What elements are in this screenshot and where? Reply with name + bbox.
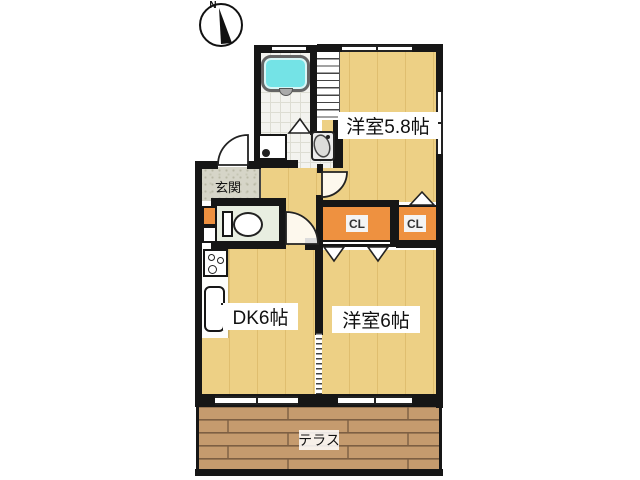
wall-toilet-top	[211, 198, 286, 206]
stove-burner-icon	[208, 265, 217, 274]
stove-burner-icon	[208, 254, 215, 261]
closet-left-label: CL	[346, 215, 368, 232]
wall-bath-right	[310, 45, 317, 135]
wall-toilet-right	[279, 198, 286, 249]
wall-toilet-bottom	[211, 241, 286, 249]
wall-junction	[305, 238, 318, 250]
sliding-door-dk-room6	[316, 333, 322, 394]
wall-terrace-bottom	[195, 469, 443, 476]
washing-machine-drain-icon	[262, 149, 270, 157]
terrace-label: テラス	[299, 430, 339, 450]
storage-box-icon	[202, 226, 217, 243]
closet-shelf-strip	[317, 52, 340, 120]
stove-burner-icon	[217, 257, 224, 264]
wall-dk-room6-partition	[315, 250, 323, 335]
entrance-label: 玄関	[210, 178, 246, 194]
toilet-tank-icon	[222, 211, 233, 237]
washbasin-icon	[311, 131, 335, 161]
room-5-8-label: 洋室5.8帖	[338, 112, 438, 139]
shoe-cabinet-icon	[202, 206, 217, 226]
wall-left	[195, 161, 202, 400]
floor-plan: N	[0, 0, 640, 480]
dk-label: DK6帖	[223, 303, 298, 330]
wall-hall-room58-stub	[317, 164, 323, 173]
wall-terrace-left	[196, 407, 199, 469]
wall-closet-right-bottom	[396, 240, 443, 248]
washing-machine-icon	[258, 134, 287, 160]
bathtub-icon	[261, 55, 310, 92]
room-6-label: 洋室6帖	[332, 306, 420, 333]
toilet-bowl-icon	[233, 212, 263, 237]
wall-terrace-right	[439, 407, 442, 469]
compass-north-label: N	[206, 0, 220, 11]
kitchen-sink-icon	[204, 286, 225, 332]
closet-right-label: CL	[404, 215, 426, 232]
front-door-swing	[218, 135, 248, 165]
wall-washroom-bottom	[254, 160, 298, 168]
wall-closet-left-track	[318, 244, 390, 247]
wall-closet-left-top	[317, 200, 393, 207]
window-bathroom	[272, 45, 306, 52]
